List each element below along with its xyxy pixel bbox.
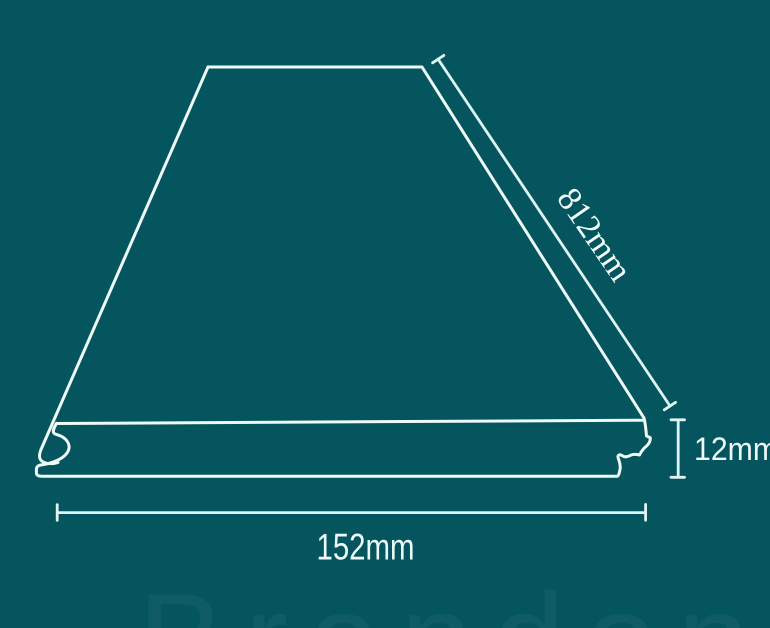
svg-text:Brandon: Brandon [138,566,770,628]
svg-text:12mm: 12mm [694,431,770,467]
svg-text:152mm: 152mm [317,527,415,568]
